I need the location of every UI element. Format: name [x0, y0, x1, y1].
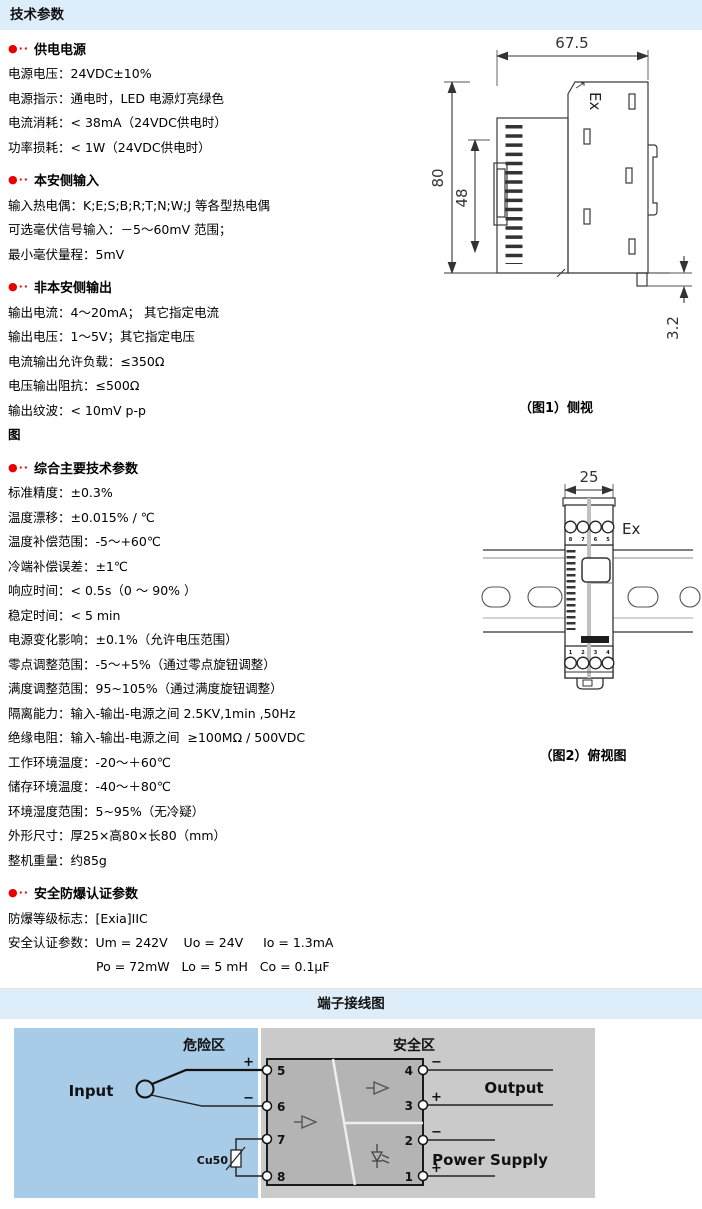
dim-inner-label: 48 — [453, 188, 471, 207]
dim-width-label: 25 — [579, 468, 598, 486]
section-title: 供电电源 — [34, 39, 86, 58]
hazard-zone-label: 危险区 — [182, 1037, 225, 1054]
terminal-dot — [263, 1066, 272, 1075]
figure1-side-view: 67.5 80 48 — [430, 28, 702, 418]
page-title: 技术参数 — [10, 7, 64, 23]
bullet-icon: ●·· — [8, 173, 29, 186]
display-window — [582, 558, 610, 582]
section-header-power: ●·· 供电电源 — [8, 36, 448, 61]
terminal-number: 2 — [581, 650, 585, 656]
spec-line: 绝缘电阻：输入-输出-电源之间 ≥100MΩ / 500VDC — [8, 725, 448, 750]
section-header-is-input: ●·· 本安侧输入 — [8, 168, 448, 193]
polarity-sign: + — [431, 1090, 442, 1105]
spec-line: 隔离能力：输入-输出-电源之间 2.5KV,1min ,50Hz — [8, 700, 448, 725]
spec-line: 安全认证参数：Um = 242V Uo = 24V Io = 1.3mA — [8, 930, 448, 955]
terminal-number: 5 — [606, 537, 610, 543]
terminal-number: 8 — [569, 537, 573, 543]
spec-line: 最小毫伏量程：5mV — [8, 241, 448, 266]
bullet-icon: ●·· — [8, 42, 29, 55]
sensor-label: Cu50 — [197, 1154, 229, 1167]
spec-line: 电源变化影响：±0.1%（允许电压范围） — [8, 627, 448, 652]
bullet-icon: ●·· — [8, 280, 29, 293]
spec-line: 电流输出允许负载：≤350Ω — [8, 348, 448, 373]
terminal-dot — [419, 1136, 428, 1145]
output-label: Output — [484, 1079, 543, 1097]
datasheet-page: 技术参数 ●·· 供电电源 电源电压：24VDC±10% 电源指示：通电时，LE… — [0, 0, 702, 1209]
figure2-top-view: 25 — [430, 450, 702, 780]
terminal-dot — [419, 1172, 428, 1181]
din-clip — [637, 145, 657, 286]
spec-line: 输出电流：4～20mA； 其它指定电流 — [8, 299, 448, 324]
din-clip — [577, 678, 603, 689]
section-title: 安全防爆认证参数 — [34, 883, 138, 902]
dimension-width: 25 — [565, 468, 613, 502]
terminal-number: 8 — [277, 1170, 285, 1184]
power-label: Power Supply — [432, 1151, 548, 1169]
polarity-sign: + — [243, 1055, 254, 1070]
dimension-width: 67.5 — [497, 34, 648, 86]
spec-line: 可选毫伏信号输入：－5～60mV 范围； — [8, 217, 448, 242]
spec-line: 电源电压：24VDC±10% — [8, 61, 448, 86]
section-title: 非本安侧输出 — [34, 277, 112, 296]
spec-line: 电流消耗：< 38mA（24VDC供电时） — [8, 110, 448, 135]
section-header-general: ●·· 综合主要技术参数 — [8, 455, 448, 480]
terminal-number: 2 — [405, 1134, 413, 1148]
mark-icon — [576, 83, 584, 88]
spec-line: 工作环境温度：-20～＋60℃ — [8, 749, 448, 774]
spec-line: 功率损耗：< 1W（24VDC供电时） — [8, 134, 448, 159]
module-outline — [494, 82, 648, 273]
section-header-output: ●·· 非本安侧输出 — [8, 275, 448, 300]
spec-line: 电压输出阻抗：≤500Ω — [8, 373, 448, 398]
spec-line: 满度调整范围：95~105%（通过满度旋钮调整） — [8, 676, 448, 701]
terminal-number: 7 — [581, 537, 585, 543]
spec-line: 外形尺寸：厚25×高80×长80（mm） — [8, 823, 448, 848]
spec-line: 稳定时间：< 5 min — [8, 602, 448, 627]
spec-line: 冷端补偿误差：±1℃ — [8, 553, 448, 578]
terminal-dot — [419, 1101, 428, 1110]
terminal-number: 1 — [405, 1170, 413, 1184]
polarity-sign: − — [431, 1125, 442, 1140]
terminal-number: 3 — [594, 650, 598, 656]
polarity-sign: − — [243, 1091, 254, 1106]
terminal-number: 5 — [277, 1064, 285, 1078]
type-label-strip — [581, 636, 609, 643]
spec-line: 储存环境温度：-40～＋80℃ — [8, 774, 448, 799]
dim-width-label: 67.5 — [555, 34, 588, 52]
spec-line: Po = 72mW Lo = 5 mH Co = 0.1μF — [8, 954, 448, 979]
terminal-number: 6 — [594, 537, 598, 543]
spec-line: 环境湿度范围：5~95%（无冷疑） — [8, 798, 448, 823]
section-title: 本安侧输入 — [34, 170, 99, 189]
dim-foot-label: 3.2 — [664, 316, 682, 340]
dimension-foot: 3.2 — [647, 256, 692, 340]
spec-line: 防爆等级标志：[Exia]IIC — [8, 905, 448, 930]
terminal-dot — [263, 1102, 272, 1111]
spec-line: 输出电压：1～5V；其它指定电压 — [8, 324, 448, 349]
spec-line: 零点调整范围：-5～+5%（通过零点旋钮调整） — [8, 651, 448, 676]
terminal-number: 4 — [606, 650, 610, 656]
polarity-sign: + — [431, 1161, 442, 1176]
spec-line: 输出纹波：< 10mV p-p — [8, 397, 448, 422]
spec-line: 温度补偿范围：-5～+60℃ — [8, 529, 448, 554]
figure1-caption: （图1）侧视 — [519, 400, 593, 416]
spec-line: 电源指示：通电时，LED 电源灯亮绿色 — [8, 85, 448, 110]
spec-list: ●·· 供电电源 电源电压：24VDC±10% 电源指示：通电时，LED 电源灯… — [8, 30, 448, 979]
input-label: Input — [69, 1082, 114, 1100]
terminal-dot — [419, 1066, 428, 1075]
terminal-dot — [263, 1172, 272, 1181]
bullet-icon: ●·· — [8, 461, 29, 474]
spec-line: 响应时间：< 0.5s（0 ～ 90% ） — [8, 578, 448, 603]
spec-line: 输入热电偶：K;E;S;B;R;T;N;W;J 等各型热电偶 — [8, 192, 448, 217]
dimension-inner: 48 — [453, 140, 490, 252]
terminal-number: 1 — [569, 650, 573, 656]
spec-line: 温度漂移：±0.015% / ℃ — [8, 504, 448, 529]
section-title: 综合主要技术参数 — [34, 458, 138, 477]
ex-marking-label: Ex — [622, 520, 640, 538]
figure2-caption: （图2）俯视图 — [539, 748, 626, 764]
spec-line: 整机重量：约85g — [8, 847, 448, 872]
spec-line: 标准精度：±0.3% — [8, 480, 448, 505]
terminal-number: 7 — [277, 1133, 285, 1147]
terminal-dot — [263, 1135, 272, 1144]
section-header-safety: ●·· 安全防爆认证参数 — [8, 881, 448, 906]
ex-marking-label: Ex — [586, 92, 604, 110]
terminal-number: 4 — [405, 1064, 413, 1078]
terminal-number: 6 — [277, 1100, 285, 1114]
polarity-sign: − — [431, 1055, 442, 1070]
section-bar-tech-params: 技术参数 — [0, 0, 702, 30]
wiring-diagram: 危险区 安全区 — [14, 1028, 595, 1198]
spec-line-figure-note: 图 — [8, 422, 448, 447]
wiring-title: 端子接线图 — [317, 996, 385, 1012]
dimension-height: 80 — [430, 82, 470, 273]
safe-zone-label: 安全区 — [393, 1037, 435, 1054]
section-bar-wiring: 端子接线图 — [0, 988, 702, 1019]
bullet-icon: ●·· — [8, 886, 29, 899]
terminal-number: 3 — [405, 1099, 413, 1113]
dim-height-label: 80 — [430, 168, 447, 187]
